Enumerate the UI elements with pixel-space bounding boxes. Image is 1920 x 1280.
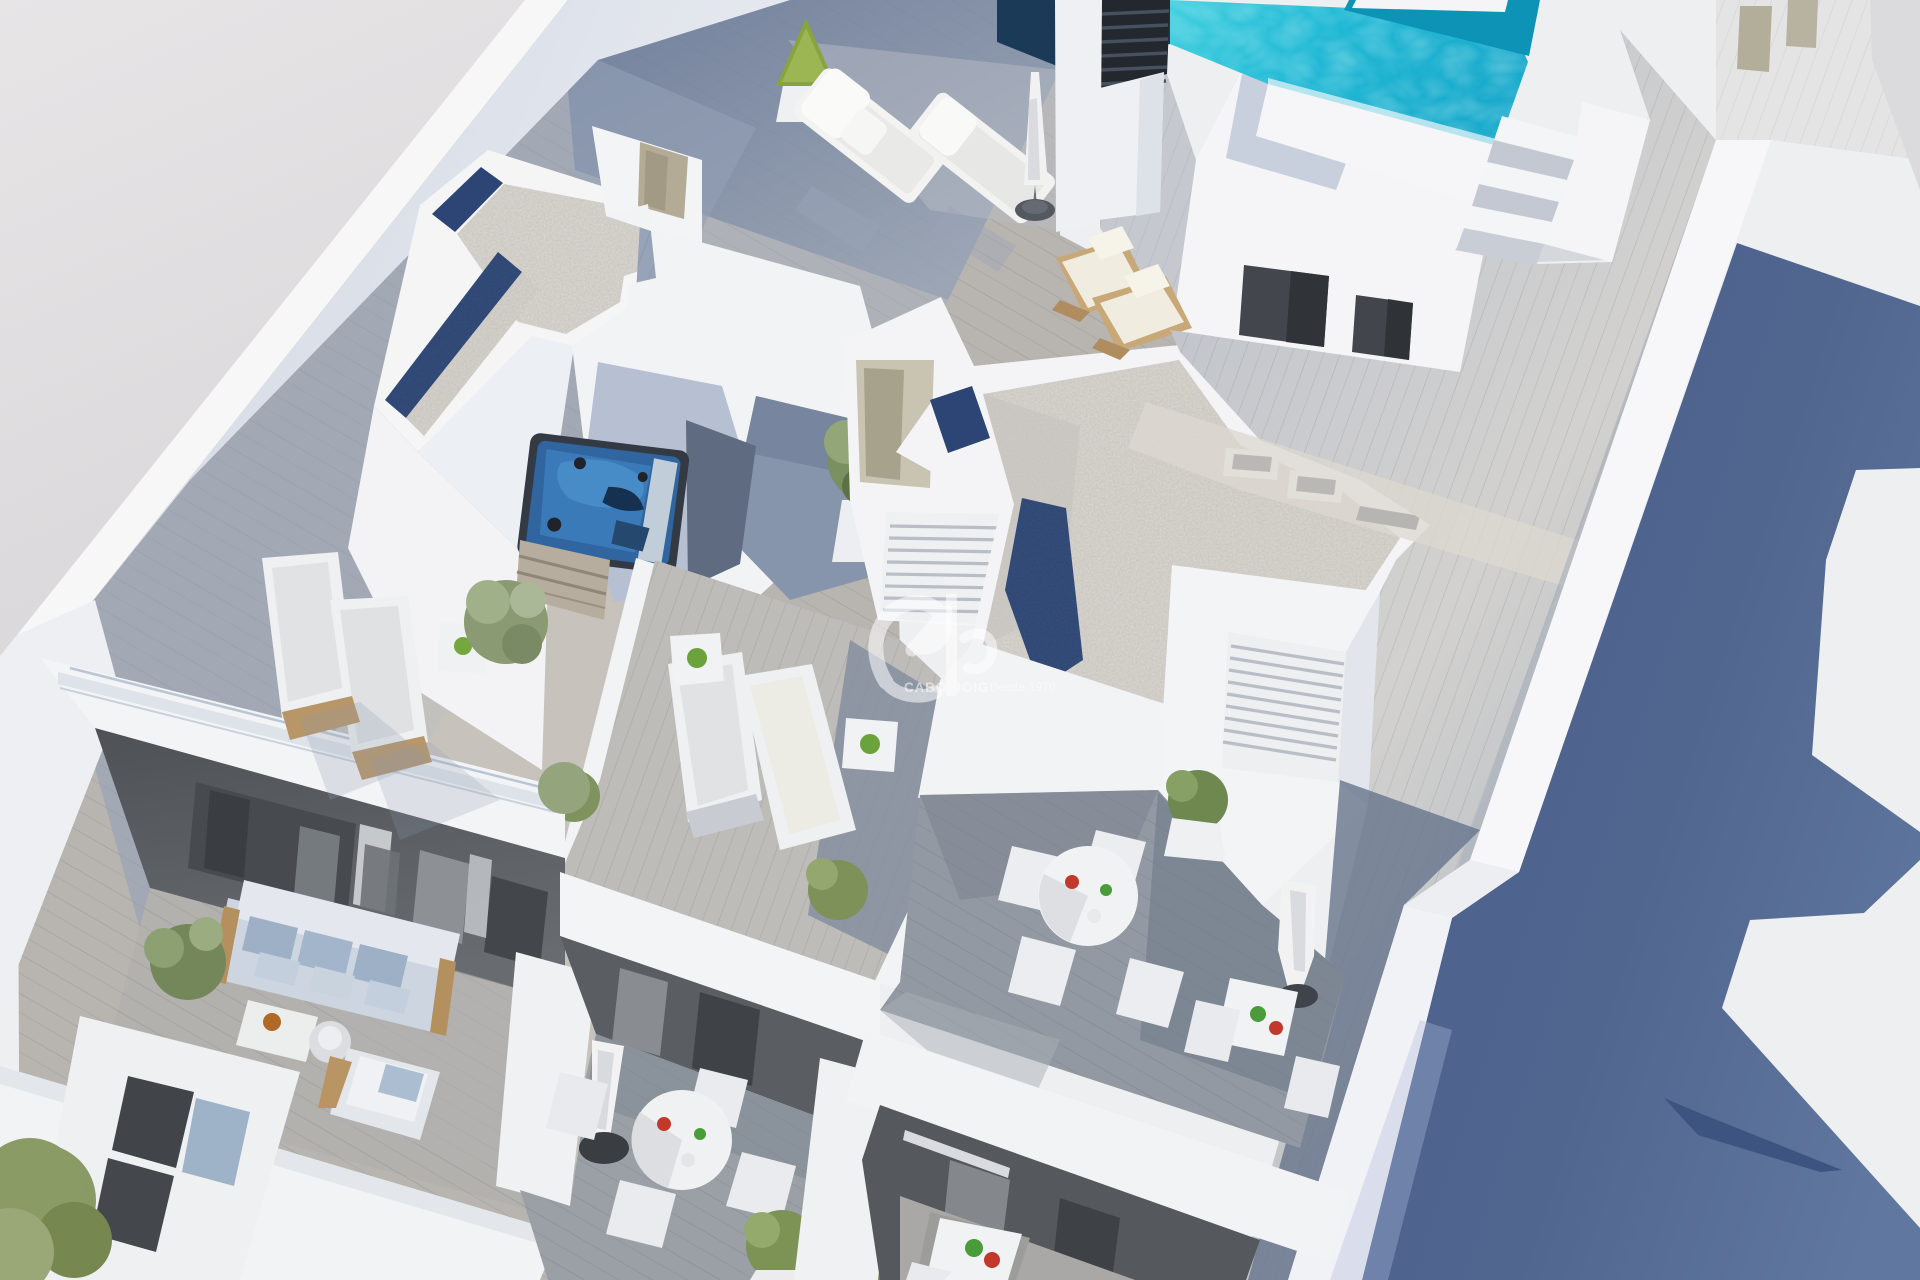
svg-text:Desde 1970: Desde 1970 [990,682,1056,694]
svg-text:CABO ROIG: CABO ROIG [904,680,989,695]
